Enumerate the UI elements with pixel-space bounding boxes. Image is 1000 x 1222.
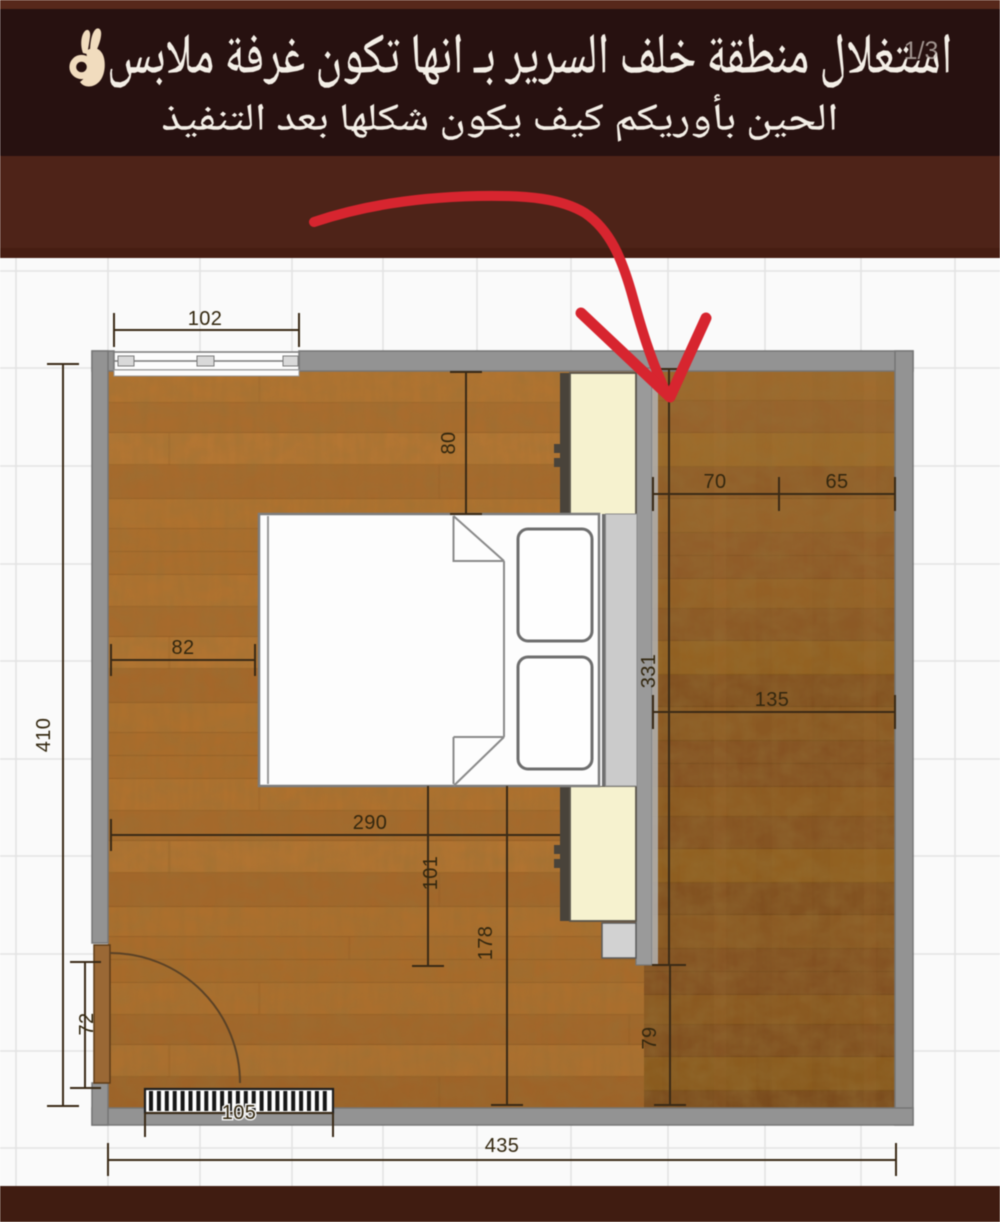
svg-text:65: 65	[825, 471, 848, 493]
svg-text:105: 105	[222, 1102, 257, 1124]
svg-text:135: 135	[755, 689, 790, 711]
svg-text:82: 82	[171, 637, 194, 659]
svg-text:101: 101	[420, 856, 442, 891]
svg-text:1/3: 1/3	[904, 37, 939, 65]
svg-text:410: 410	[33, 718, 55, 753]
svg-text:79: 79	[639, 1026, 661, 1049]
svg-text:72: 72	[76, 1012, 98, 1035]
svg-text:331: 331	[638, 654, 660, 689]
svg-text:435: 435	[485, 1135, 520, 1157]
svg-text:80: 80	[438, 431, 460, 454]
svg-text:70: 70	[703, 471, 726, 493]
svg-text:102: 102	[188, 308, 223, 330]
svg-text:290: 290	[353, 812, 388, 834]
svg-text:178: 178	[475, 926, 497, 961]
